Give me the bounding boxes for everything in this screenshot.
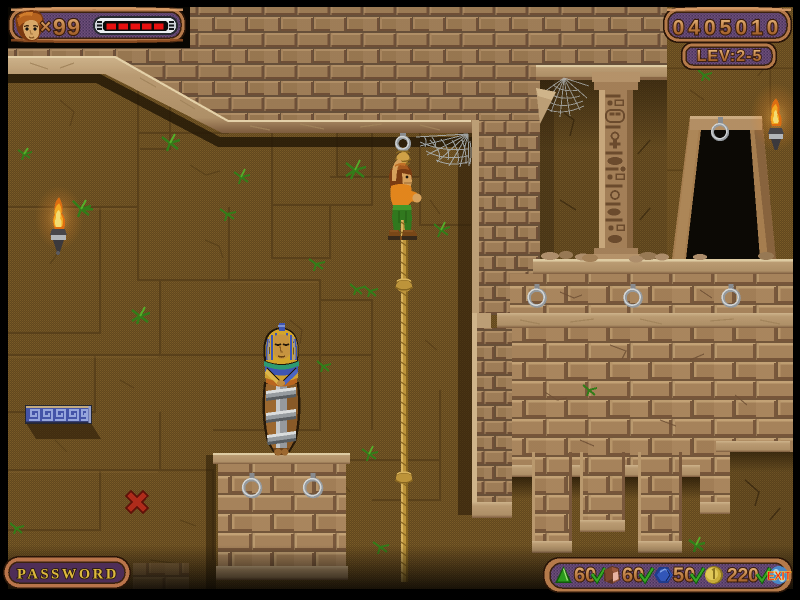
svg-text:220: 220 (727, 566, 759, 587)
svg-text:PASSWORD: PASSWORD (17, 567, 119, 583)
svg-text:×: × (40, 17, 51, 38)
svg-text:EXIT: EXIT (767, 571, 791, 583)
svg-text:99: 99 (53, 14, 82, 40)
svg-text:0405010: 0405010 (673, 17, 783, 40)
svg-text:LEV:2-5: LEV:2-5 (697, 48, 763, 65)
